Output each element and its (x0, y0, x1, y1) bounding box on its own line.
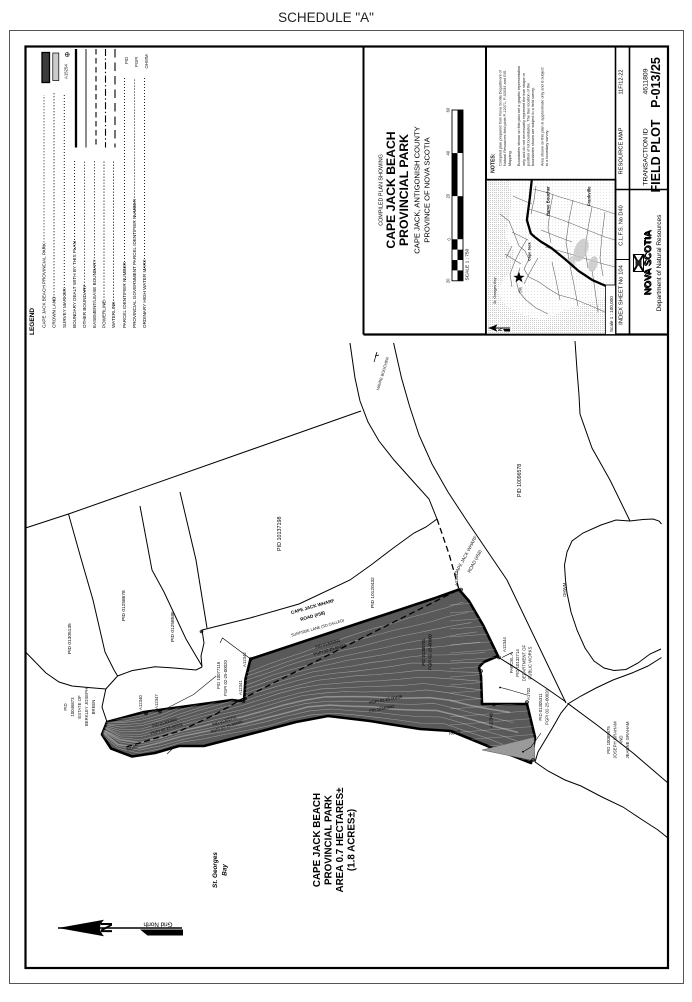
svg-text:ESTATE OF: ESTATE OF (77, 695, 82, 719)
svg-text:A12340: A12340 (138, 695, 143, 710)
svg-text:position of lot boundaries. T: position of lot boundaries. The true loc… (527, 83, 531, 166)
svg-text:St. Georges Bay: St. Georges Bay (493, 277, 497, 304)
svg-text:PID 01305701: PID 01305701 (421, 638, 426, 666)
svg-text:Natural Resources field plots: Natural Resources field plots P-12071, P… (503, 70, 507, 166)
svg-text:Boundaries shown on this plan: Boundaries shown on this plan are a grap… (517, 66, 521, 166)
svg-text:PARCEL A: PARCEL A (509, 653, 514, 674)
svg-text:N: N (498, 327, 504, 331)
svg-text:PGPI: PGPI (134, 57, 139, 67)
svg-text:Compiled plan prepared from No: Compiled plan prepared from Nova Scotia … (499, 69, 503, 166)
svg-text:NOVA SCOTIA: NOVA SCOTIA (643, 229, 654, 294)
svg-text:PROVINCE OF NOVA SCOTIA: PROVINCE OF NOVA SCOTIA (423, 136, 432, 242)
svg-text:PID 10132714: PID 10132714 (515, 649, 520, 677)
svg-text:10046873: 10046873 (70, 697, 75, 717)
svg-text:Mapping.: Mapping. (508, 150, 512, 166)
svg-text:St. Georges: St. Georges (212, 852, 219, 888)
svg-text:PID 10137198: PID 10137198 (277, 517, 283, 551)
svg-text:POWERLINE: POWERLINE (102, 300, 107, 328)
svg-text:CAPE JACK BEACH: CAPE JACK BEACH (312, 793, 323, 887)
svg-text:PID 01258586: PID 01258586 (170, 611, 176, 642)
svg-text:Grid North: Grid North (143, 921, 173, 928)
svg-text:PID 10120432: PID 10120432 (370, 577, 376, 608)
svg-text:AND: AND (619, 735, 624, 744)
svg-text:CAPE JACK BEACH: CAPE JACK BEACH (384, 131, 398, 248)
svg-text:OHWM: OHWM (144, 54, 149, 69)
svg-text:PROVINCIAL PARK: PROVINCIAL PARK (397, 134, 411, 246)
svg-text:Department of Natural Resource: Department of Natural Resources (656, 214, 663, 312)
svg-text:NOTES:: NOTES: (491, 153, 497, 173)
svg-text:PUBLIC WORKS: PUBLIC WORKS (528, 646, 533, 679)
svg-text:PID 10089875: PID 10089875 (606, 726, 611, 754)
svg-text:BOUNDARY DEALT WITH BY THIS PL: BOUNDARY DEALT WITH BY THIS PLAN (72, 241, 77, 328)
svg-text:PID 10077116: PID 10077116 (216, 661, 221, 689)
svg-text:PID 01258678: PID 01258678 (121, 590, 127, 621)
svg-text:SCHEDULE "A": SCHEDULE "A" (278, 10, 374, 25)
svg-text:PROVINCIAL PARK: PROVINCIAL PARK (324, 795, 335, 885)
svg-text:FIELD PLOT: FIELD PLOT (649, 119, 663, 192)
svg-text:Frankville: Frankville (587, 186, 592, 206)
svg-text:PID: PID (63, 703, 68, 710)
svg-text:BERKLEY JOSEPH: BERKLEY JOSEPH (84, 688, 89, 726)
svg-text:PID 01305135: PID 01305135 (67, 623, 73, 654)
svg-text:A12346: A12346 (489, 713, 494, 728)
svg-text:11F/12-22: 11F/12-22 (619, 69, 625, 94)
svg-text:only and do not necessarily re: only and do not necessarily represent th… (522, 72, 526, 166)
svg-text:C.L.F.S. No D40: C.L.F.S. No D40 (619, 205, 625, 245)
svg-text:A15254: A15254 (64, 64, 69, 79)
svg-text:Scale 1 : 100,000: Scale 1 : 100,000 (609, 296, 614, 332)
svg-text:(58): (58) (519, 287, 523, 293)
svg-text:CAPE JACK, ANTIGONISH COUNTY: CAPE JACK, ANTIGONISH COUNTY (413, 126, 422, 253)
svg-text:PID: PID (124, 57, 129, 64)
svg-text:20: 20 (446, 193, 451, 198)
svg-text:A12347: A12347 (154, 694, 159, 709)
svg-text:INDEX SHEET No 104: INDEX SHEET No 104 (619, 264, 625, 325)
svg-text:PID 01305311: PID 01305311 (538, 693, 543, 721)
svg-text:ORDINARY HIGH WATER MARK: ORDINARY HIGH WATER MARK (142, 258, 147, 328)
svg-text:PGPI 02-25-00000: PGPI 02-25-00000 (428, 633, 433, 669)
svg-text:boundaries shown are subject t: boundaries shown are subject to a field … (531, 87, 535, 166)
svg-text:WATERLINE: WATERLINE (111, 302, 116, 328)
svg-text:PARCEL IDENTIFIER NUMBER: PARCEL IDENTIFIER NUMBER (122, 261, 127, 328)
svg-text:20: 20 (446, 278, 451, 283)
svg-text:A1702: A1702 (526, 687, 531, 700)
svg-text:40: 40 (446, 150, 451, 155)
svg-text:N: N (99, 922, 116, 933)
svg-text:Bay: Bay (222, 864, 229, 876)
svg-text:CAPE JACK BEACH PROVINCIAL PAR: CAPE JACK BEACH PROVINCIAL PARK (42, 242, 47, 328)
svg-text:Area shown on this plan is app: Area shown on this plan is approximate o… (540, 66, 544, 166)
svg-text:LEGEND: LEGEND (29, 308, 36, 335)
svg-text:A12342: A12342 (242, 652, 247, 667)
svg-text:RESOURCE MAP: RESOURCE MAP (619, 127, 625, 174)
svg-text:AREA 0.7 HECTARES±: AREA 0.7 HECTARES± (335, 787, 346, 893)
svg-text:(1.8 ACRES±): (1.8 ACRES±) (347, 809, 358, 871)
svg-text:JOSEPH GRAHAM: JOSEPH GRAHAM (612, 721, 617, 759)
svg-text:P-013/25: P-013/25 (649, 57, 663, 108)
svg-text:OHWM: OHWM (562, 582, 567, 597)
svg-text:to a boundary survey.: to a boundary survey. (545, 130, 549, 166)
svg-text:PGPI 02-25-00020: PGPI 02-25-00020 (545, 688, 550, 724)
svg-text:DEPARTMENT OF: DEPARTMENT OF (521, 644, 526, 681)
svg-text:BREEN: BREEN (91, 700, 96, 715)
svg-text:JEANNE GRAHAM: JEANNE GRAHAM (625, 721, 630, 758)
svg-text:Harve Boucher: Harve Boucher (546, 186, 551, 216)
svg-text:PROVINCIAL GOVERNMENT PARCEL I: PROVINCIAL GOVERNMENT PARCEL IDENTIFIER … (132, 198, 137, 328)
svg-text:60: 60 (446, 107, 451, 112)
svg-text:Cape Jack: Cape Jack (528, 241, 532, 261)
svg-text:A12344: A12344 (502, 637, 507, 652)
svg-text:A12341: A12341 (238, 680, 243, 695)
svg-text:SCALE 1 : 750: SCALE 1 : 750 (465, 248, 471, 280)
svg-text:PID 10096578: PID 10096578 (517, 464, 523, 497)
svg-text:PGPI 02-25-00020: PGPI 02-25-00020 (223, 660, 228, 696)
